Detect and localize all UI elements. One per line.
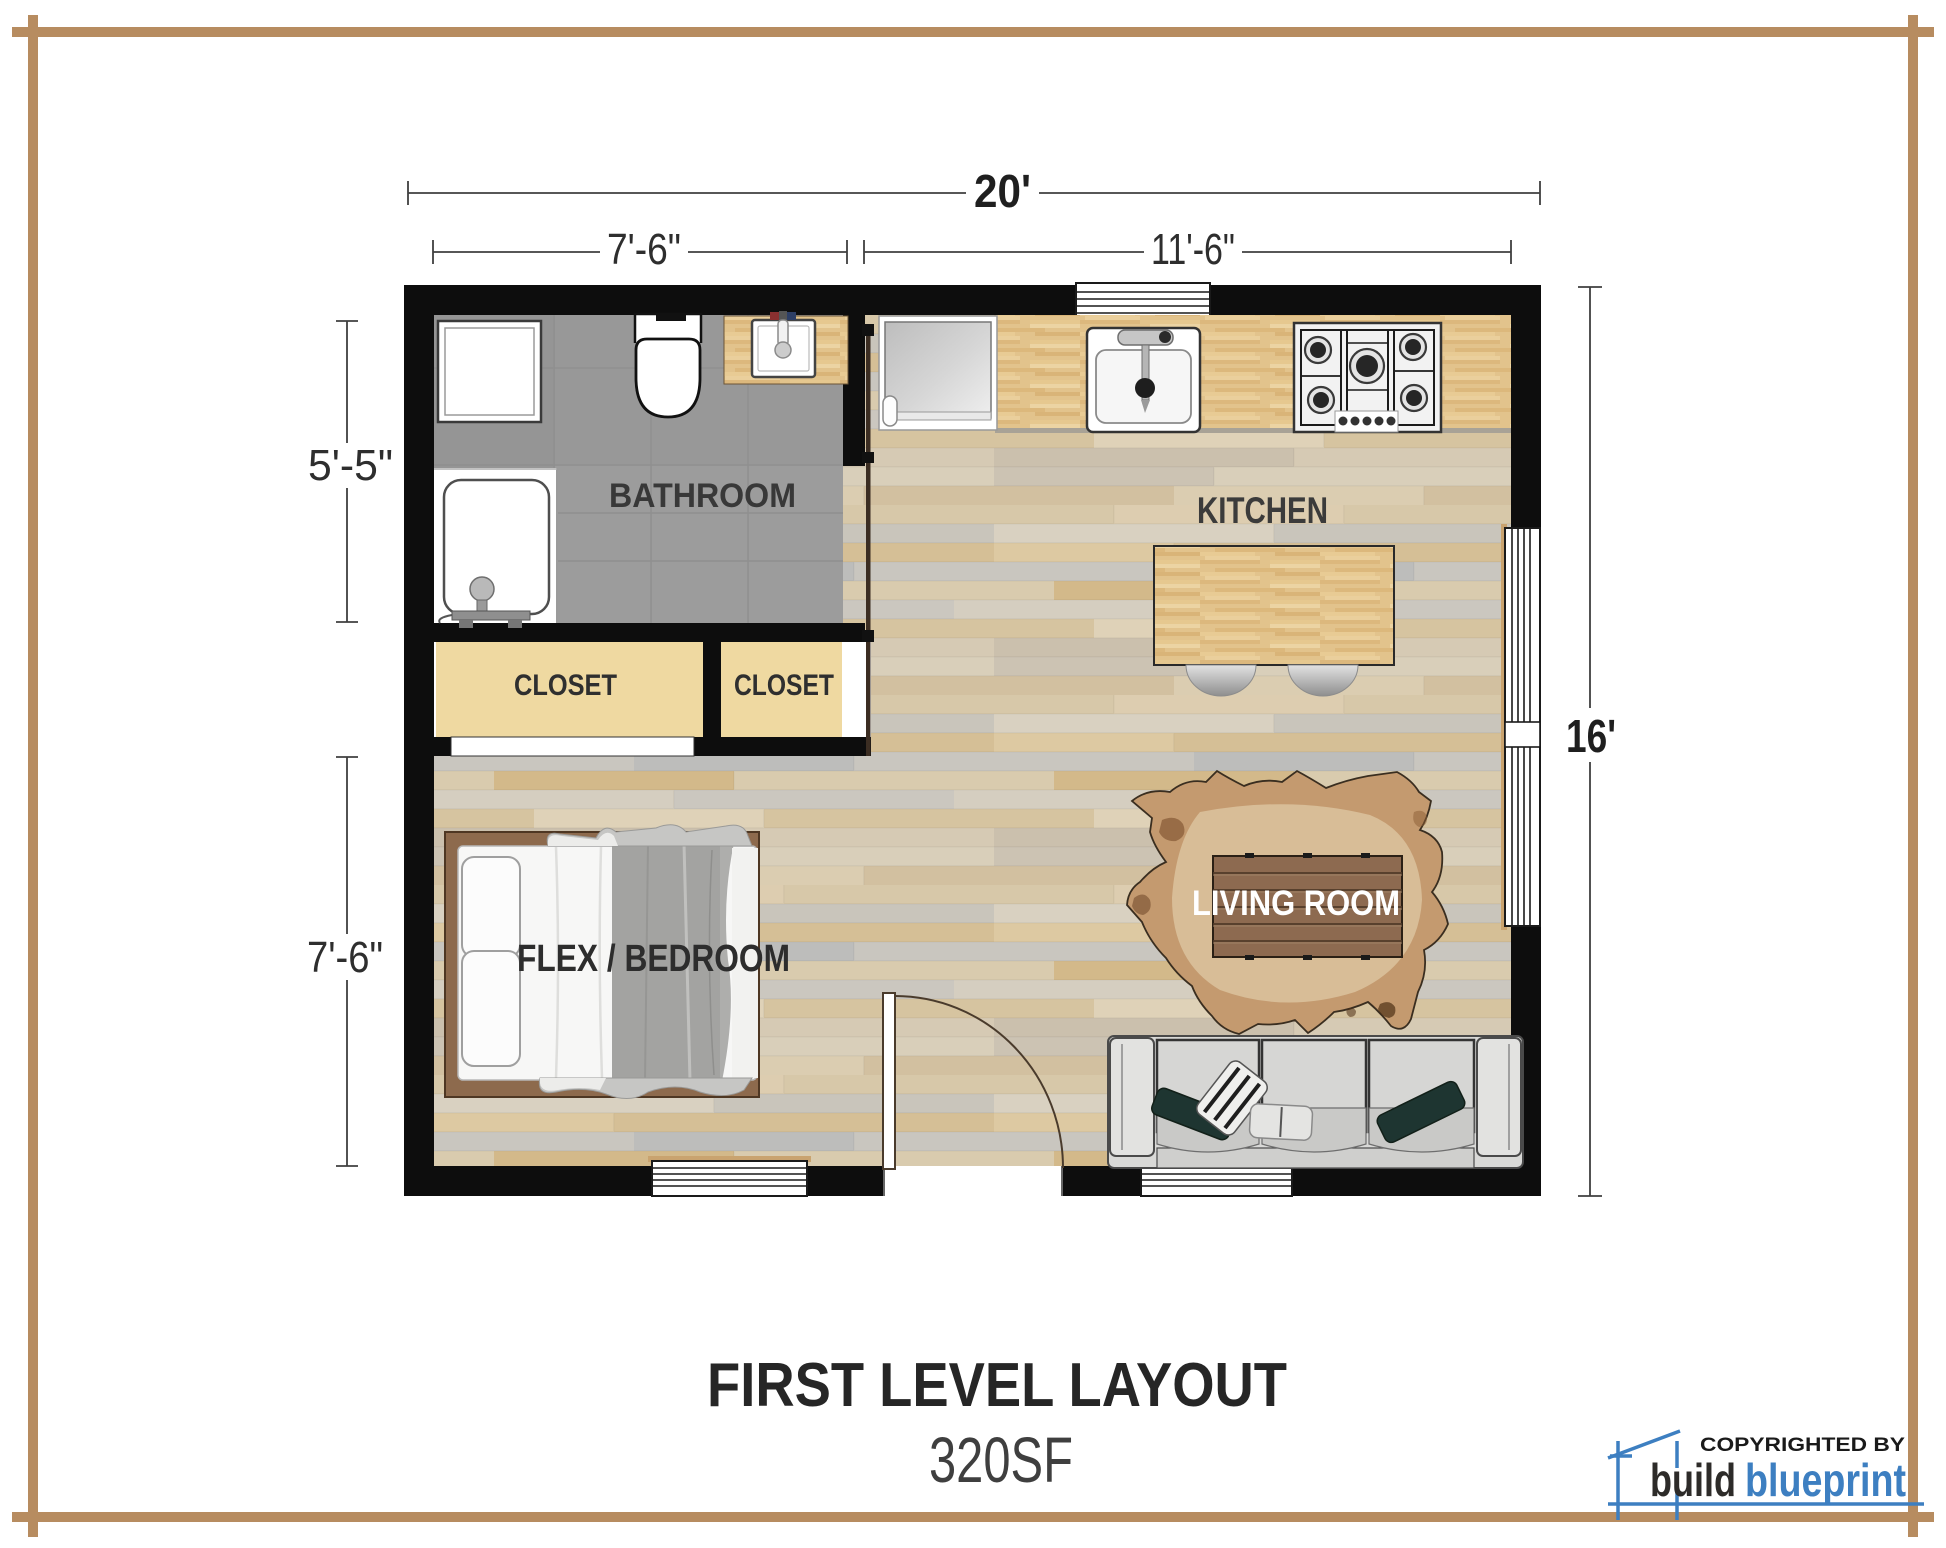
svg-text:KITCHEN: KITCHEN (1197, 490, 1328, 531)
svg-text:320SF: 320SF (929, 1424, 1073, 1496)
svg-text:FLEX / BEDROOM: FLEX / BEDROOM (517, 938, 790, 980)
svg-text:20': 20' (974, 165, 1031, 217)
svg-text:CLOSET: CLOSET (514, 669, 617, 702)
svg-text:7'-6": 7'-6" (307, 933, 383, 982)
svg-text:7'-6": 7'-6" (607, 225, 681, 274)
svg-text:COPYRIGHTED BY: COPYRIGHTED BY (1700, 1435, 1905, 1456)
svg-text:LIVING ROOM: LIVING ROOM (1192, 884, 1400, 923)
svg-text:FIRST LEVEL LAYOUT: FIRST LEVEL LAYOUT (707, 1351, 1287, 1420)
svg-text:build: build (1650, 1454, 1736, 1506)
svg-text:16': 16' (1566, 710, 1616, 762)
svg-text:CLOSET: CLOSET (734, 669, 834, 702)
svg-text:11'-6": 11'-6" (1151, 225, 1235, 274)
svg-text:5'-5": 5'-5" (308, 441, 393, 490)
svg-text:BATHROOM: BATHROOM (609, 477, 796, 515)
svg-text:blueprint: blueprint (1745, 1454, 1906, 1506)
